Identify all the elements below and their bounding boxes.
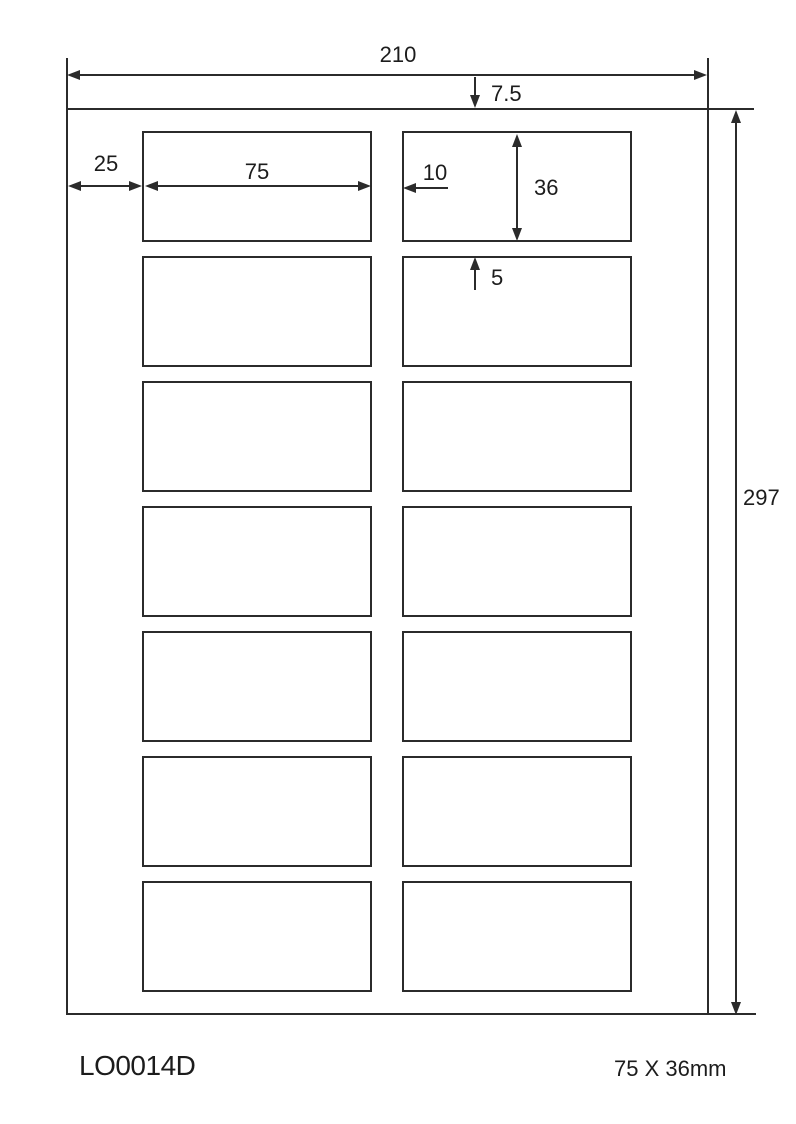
label-size-text: 75 X 36mm <box>614 1056 727 1082</box>
dim-label-sheet-width: 210 <box>368 43 428 67</box>
arrowhead-down-icon <box>731 1002 741 1015</box>
extension-line-left-top <box>66 58 68 110</box>
arrowhead-left-icon <box>67 70 80 80</box>
dim-sheet-width-line <box>80 74 694 76</box>
label-cell <box>402 381 632 492</box>
dim-top-margin-line <box>474 77 476 97</box>
label-cell <box>142 506 372 617</box>
dim-sheet-height-line <box>735 121 737 1004</box>
label-cell <box>142 256 372 367</box>
extension-line-right-top <box>707 58 709 110</box>
label-cell <box>142 881 372 992</box>
dim-label-label-width: 75 <box>236 160 278 184</box>
arrowhead-right-icon <box>129 181 142 191</box>
dim-left-margin-line <box>80 185 130 187</box>
dim-label-height-line <box>516 145 518 231</box>
label-cell <box>142 381 372 492</box>
label-cell <box>402 881 632 992</box>
label-sheet-diagram: 210 7.5 25 75 10 36 5 <box>0 0 796 1124</box>
product-code: LO0014D <box>79 1050 195 1082</box>
dim-label-sheet-height: 297 <box>743 486 780 510</box>
label-cell <box>402 631 632 742</box>
arrowhead-down-icon <box>470 95 480 108</box>
dim-label-left-margin: 25 <box>85 152 127 176</box>
arrowhead-left-icon <box>68 181 81 191</box>
arrowhead-right-icon <box>694 70 707 80</box>
label-cell <box>402 506 632 617</box>
arrowhead-down-icon <box>512 228 522 241</box>
dim-label-top-margin: 7.5 <box>491 82 522 106</box>
arrowhead-left-icon <box>145 181 158 191</box>
label-cell <box>142 756 372 867</box>
dim-column-gap-line <box>414 187 448 189</box>
label-cell <box>402 256 632 367</box>
dim-row-gap-line <box>474 268 476 290</box>
dim-label-column-gap: 10 <box>414 161 456 185</box>
dim-label-width-line <box>157 185 358 187</box>
dim-label-row-gap: 5 <box>491 266 503 290</box>
label-cell <box>402 756 632 867</box>
arrowhead-up-icon <box>512 134 522 147</box>
dim-label-label-height: 36 <box>534 176 558 200</box>
arrowhead-up-icon <box>731 110 741 123</box>
arrowhead-right-icon <box>358 181 371 191</box>
label-cell <box>142 631 372 742</box>
arrowhead-up-icon <box>470 257 480 270</box>
